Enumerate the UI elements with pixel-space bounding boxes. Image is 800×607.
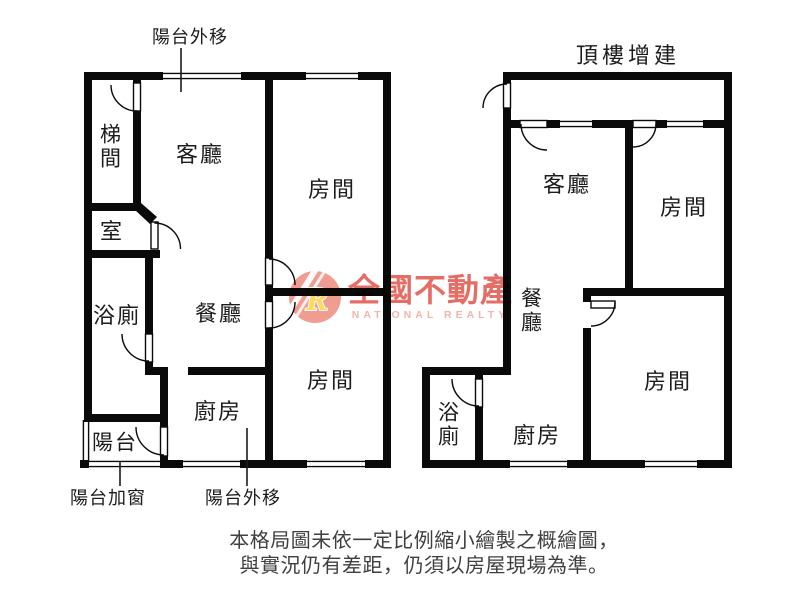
disclaimer-line-2: 與實況仍有差距，仍須以房屋現場為準。 <box>229 554 619 579</box>
room-label-inner-room: 室 <box>100 221 124 243</box>
note-balcony-moved-top: 陽台外移 <box>152 23 228 49</box>
note-balcony-moved-bottom: 陽台外移 <box>205 484 281 510</box>
room-label-bath-left: 浴廁 <box>93 305 141 327</box>
room-label-room-top-right: 房間 <box>660 197 708 219</box>
room-label-balcony: 陽台 <box>92 433 138 454</box>
room-label-dining-left: 餐廳 <box>195 303 243 325</box>
room-label-room-top-left: 房間 <box>308 179 356 201</box>
disclaimer-text: 本格局圖未依一定比例縮小繪製之概繪圖， 與實況仍有差距，仍須以房屋現場為準。 <box>229 529 619 579</box>
room-label-kitchen-right: 廚房 <box>513 425 561 447</box>
room-label-room-bottom-right: 房間 <box>644 371 692 393</box>
rooftop-addition-title: 頂樓增建 <box>576 38 680 70</box>
right-plan-walls <box>422 72 732 468</box>
room-label-kitchen-left: 廚房 <box>194 401 242 423</box>
room-label-living-right: 客廳 <box>543 174 591 196</box>
room-label-stairwell: 梯間 <box>99 123 120 171</box>
note-balcony-window-added: 陽台加窗 <box>70 484 146 510</box>
room-label-bath-right: 浴廁 <box>437 401 458 449</box>
room-label-dining-right: 餐廳 <box>520 287 541 335</box>
window-lines <box>83 73 703 466</box>
disclaimer-line-1: 本格局圖未依一定比例縮小繪製之概繪圖， <box>229 529 619 554</box>
floorplan-page: 陽台外移 梯間 客廳 房間 室 浴廁 餐廳 房間 廚房 陽台 陽台加窗 陽台外移… <box>0 0 800 607</box>
room-label-living-left: 客廳 <box>176 144 224 166</box>
room-label-room-bottom-left: 房間 <box>307 370 355 392</box>
